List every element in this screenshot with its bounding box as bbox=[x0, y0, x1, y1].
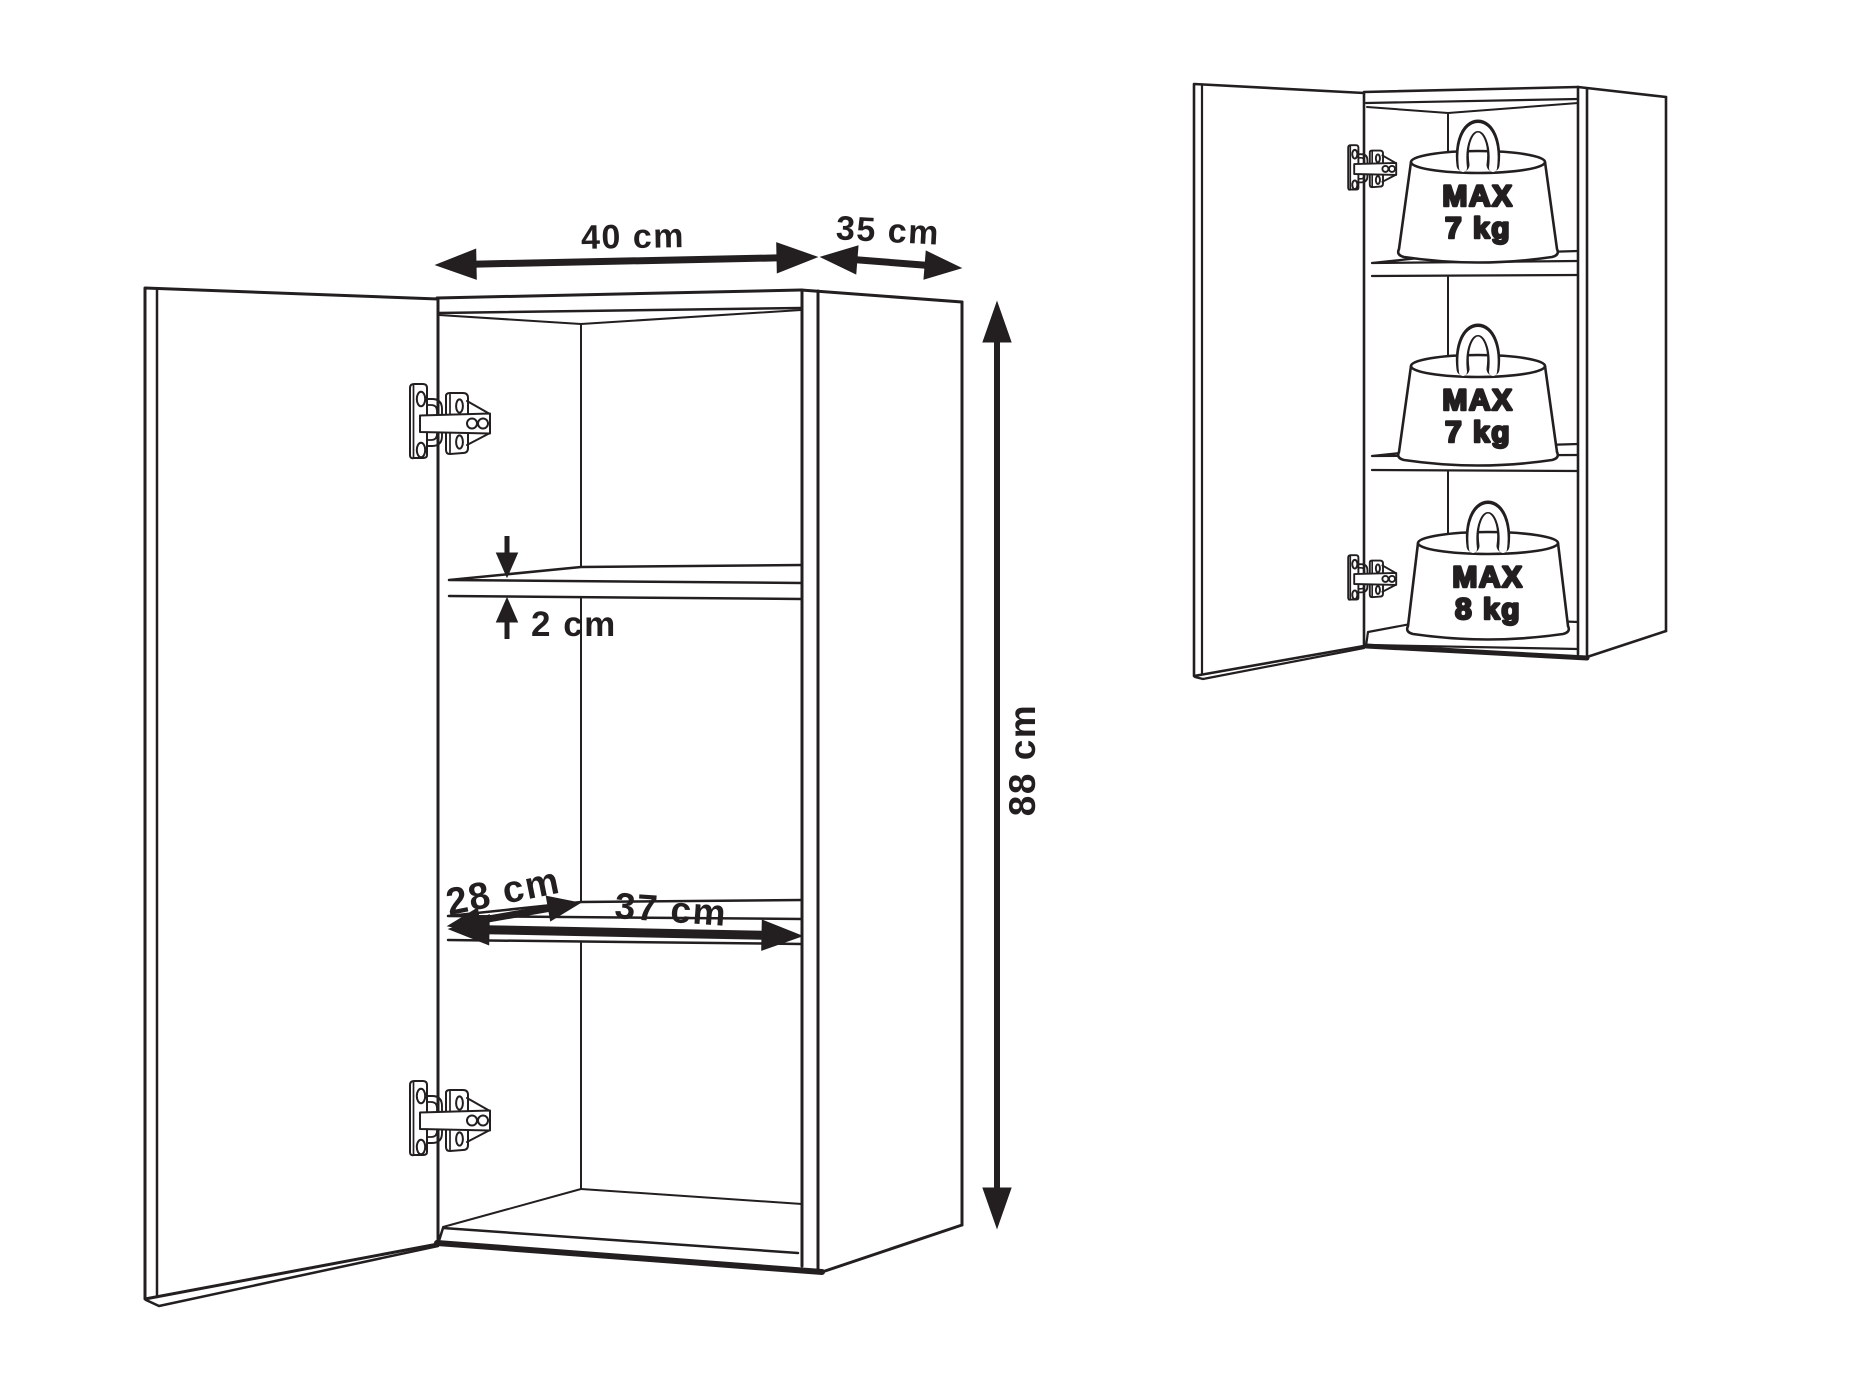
svg-text:8 kg: 8 kg bbox=[1455, 593, 1521, 626]
svg-text:MAX: MAX bbox=[1442, 384, 1513, 417]
svg-text:MAX: MAX bbox=[1442, 180, 1513, 213]
svg-text:2 cm: 2 cm bbox=[531, 605, 617, 644]
svg-text:7 kg: 7 kg bbox=[1445, 416, 1511, 449]
svg-text:40 cm: 40 cm bbox=[581, 217, 686, 257]
svg-text:7 kg: 7 kg bbox=[1445, 212, 1511, 245]
svg-text:37 cm: 37 cm bbox=[613, 885, 728, 934]
svg-text:35 cm: 35 cm bbox=[835, 209, 941, 252]
svg-text:88 cm: 88 cm bbox=[1002, 704, 1043, 816]
svg-text:MAX: MAX bbox=[1452, 561, 1523, 594]
